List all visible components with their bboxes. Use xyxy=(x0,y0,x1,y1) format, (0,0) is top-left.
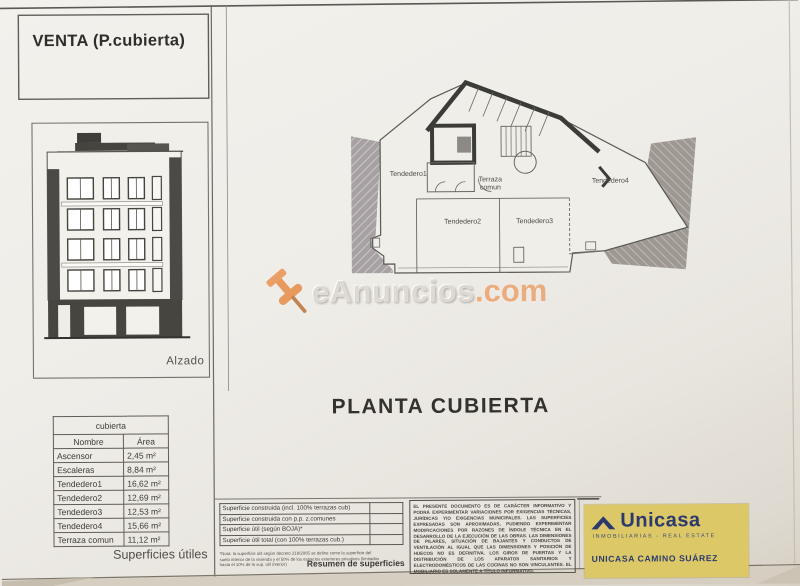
table-row: Tendedero212,69 m² xyxy=(54,490,169,505)
pushpin-icon xyxy=(266,267,312,319)
unicasa-roof-icon xyxy=(591,514,617,531)
photographed-plan-document: VENTA (P.cubierta) Alzado Tendedero1 Ter… xyxy=(0,0,800,586)
page-title: VENTA (P.cubierta) xyxy=(32,31,202,51)
agency-brand: Unicasa xyxy=(620,510,700,530)
summary-table-caption: Resumen de superficies xyxy=(268,558,405,569)
areas-table-title: cubierta xyxy=(53,416,168,435)
areas-col-area: Área xyxy=(123,434,168,448)
table-row: Escaleras8,84 m² xyxy=(54,462,169,477)
areas-col-nombre: Nombre xyxy=(53,434,123,448)
elevation-caption: Alzado xyxy=(128,355,204,367)
room-label-tendedero3: Tendedero3 xyxy=(508,218,562,226)
table-row: Tendedero415,66 m² xyxy=(54,518,169,533)
watermark: eAnuncios.com xyxy=(266,263,556,321)
table-row: Tendedero312,53 m² xyxy=(54,504,169,519)
room-label-tendedero1: Tendedero1 xyxy=(383,171,433,179)
table-row: Ascensor2,45 m² xyxy=(53,448,168,463)
table-row: Terraza comun11,12 m² xyxy=(54,532,169,547)
agency-tagline: INMOBILIARIAS - REAL ESTATE xyxy=(592,533,741,540)
watermark-tld: .com xyxy=(475,273,548,309)
room-label-tendedero2: Tendedero2 xyxy=(436,218,490,226)
legal-disclaimer: EL PRESENTE DOCUMENTO ES DE CARÁCTER INF… xyxy=(409,499,575,574)
room-label-terraza-comun: Terraza comun xyxy=(467,176,513,192)
watermark-site-name: eAnuncios xyxy=(312,274,475,311)
summary-table: Superficie construida (incl. 100% terraz… xyxy=(219,502,403,546)
table-row: Tendedero116,62 m² xyxy=(54,476,169,491)
areas-table-caption: Superficies útiles xyxy=(88,547,208,562)
areas-table: cubierta Nombre Área Ascensor2,45 m² Esc… xyxy=(53,415,170,547)
plan-title: PLANTA CUBIERTA xyxy=(281,394,601,420)
agency-office-name: UNICASA CAMINO SUÁREZ xyxy=(592,553,742,564)
venta-title-box-border xyxy=(18,14,209,99)
building-elevation-drawing xyxy=(32,122,210,378)
agency-card: Unicasa INMOBILIARIAS - REAL ESTATE UNIC… xyxy=(584,504,748,578)
table-row: Superficie útil total (con 100% terrazas… xyxy=(220,534,403,546)
room-label-tendedero4: Tendedero4 xyxy=(585,178,635,186)
